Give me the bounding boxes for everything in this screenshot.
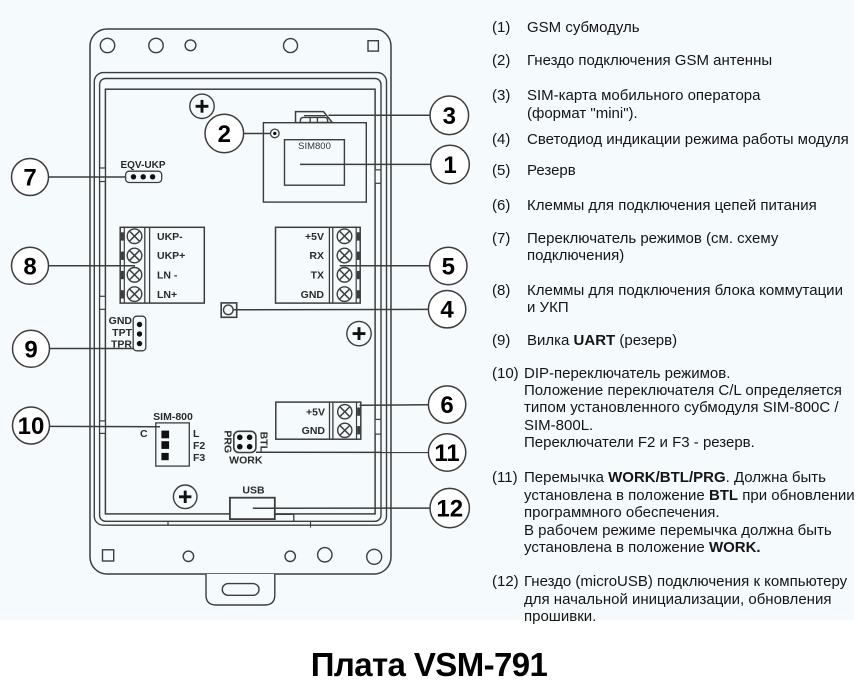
- svg-text:C: C: [140, 428, 148, 440]
- svg-text:UKP+: UKP+: [157, 250, 185, 262]
- svg-text:F2: F2: [193, 440, 205, 452]
- svg-text:BTL: BTL: [258, 432, 270, 453]
- svg-text:7: 7: [23, 165, 36, 192]
- svg-text:1: 1: [443, 152, 456, 179]
- svg-text:+5V: +5V: [306, 406, 325, 418]
- svg-text:LN -: LN -: [157, 270, 178, 282]
- svg-text:GND: GND: [302, 425, 326, 437]
- svg-text:4: 4: [440, 297, 454, 324]
- svg-text:2: 2: [218, 121, 231, 148]
- svg-text:GND: GND: [301, 289, 325, 301]
- svg-text:USB: USB: [242, 484, 265, 496]
- svg-text:PRG: PRG: [222, 430, 234, 453]
- svg-text:+5V: +5V: [305, 231, 324, 243]
- svg-text:SIM-800: SIM-800: [153, 411, 193, 423]
- svg-text:GND: GND: [109, 315, 133, 327]
- svg-text:UKP-: UKP-: [157, 231, 183, 243]
- svg-text:WORK: WORK: [229, 454, 263, 466]
- svg-text:9: 9: [24, 336, 37, 363]
- svg-text:RX: RX: [309, 250, 324, 262]
- svg-text:L: L: [193, 428, 200, 440]
- svg-text:TX: TX: [311, 270, 324, 282]
- svg-text:12: 12: [436, 496, 463, 523]
- svg-text:TPT: TPT: [112, 327, 132, 339]
- svg-text:8: 8: [23, 253, 36, 280]
- svg-text:LN+: LN+: [157, 289, 177, 301]
- svg-text:10: 10: [18, 413, 45, 440]
- svg-text:5: 5: [442, 254, 455, 281]
- svg-text:SIM800: SIM800: [298, 141, 331, 152]
- svg-text:11: 11: [434, 440, 459, 467]
- svg-text:6: 6: [440, 392, 453, 419]
- svg-text:EQV-UKP: EQV-UKP: [120, 160, 165, 171]
- svg-text:F3: F3: [193, 452, 205, 464]
- svg-text:3: 3: [443, 103, 456, 130]
